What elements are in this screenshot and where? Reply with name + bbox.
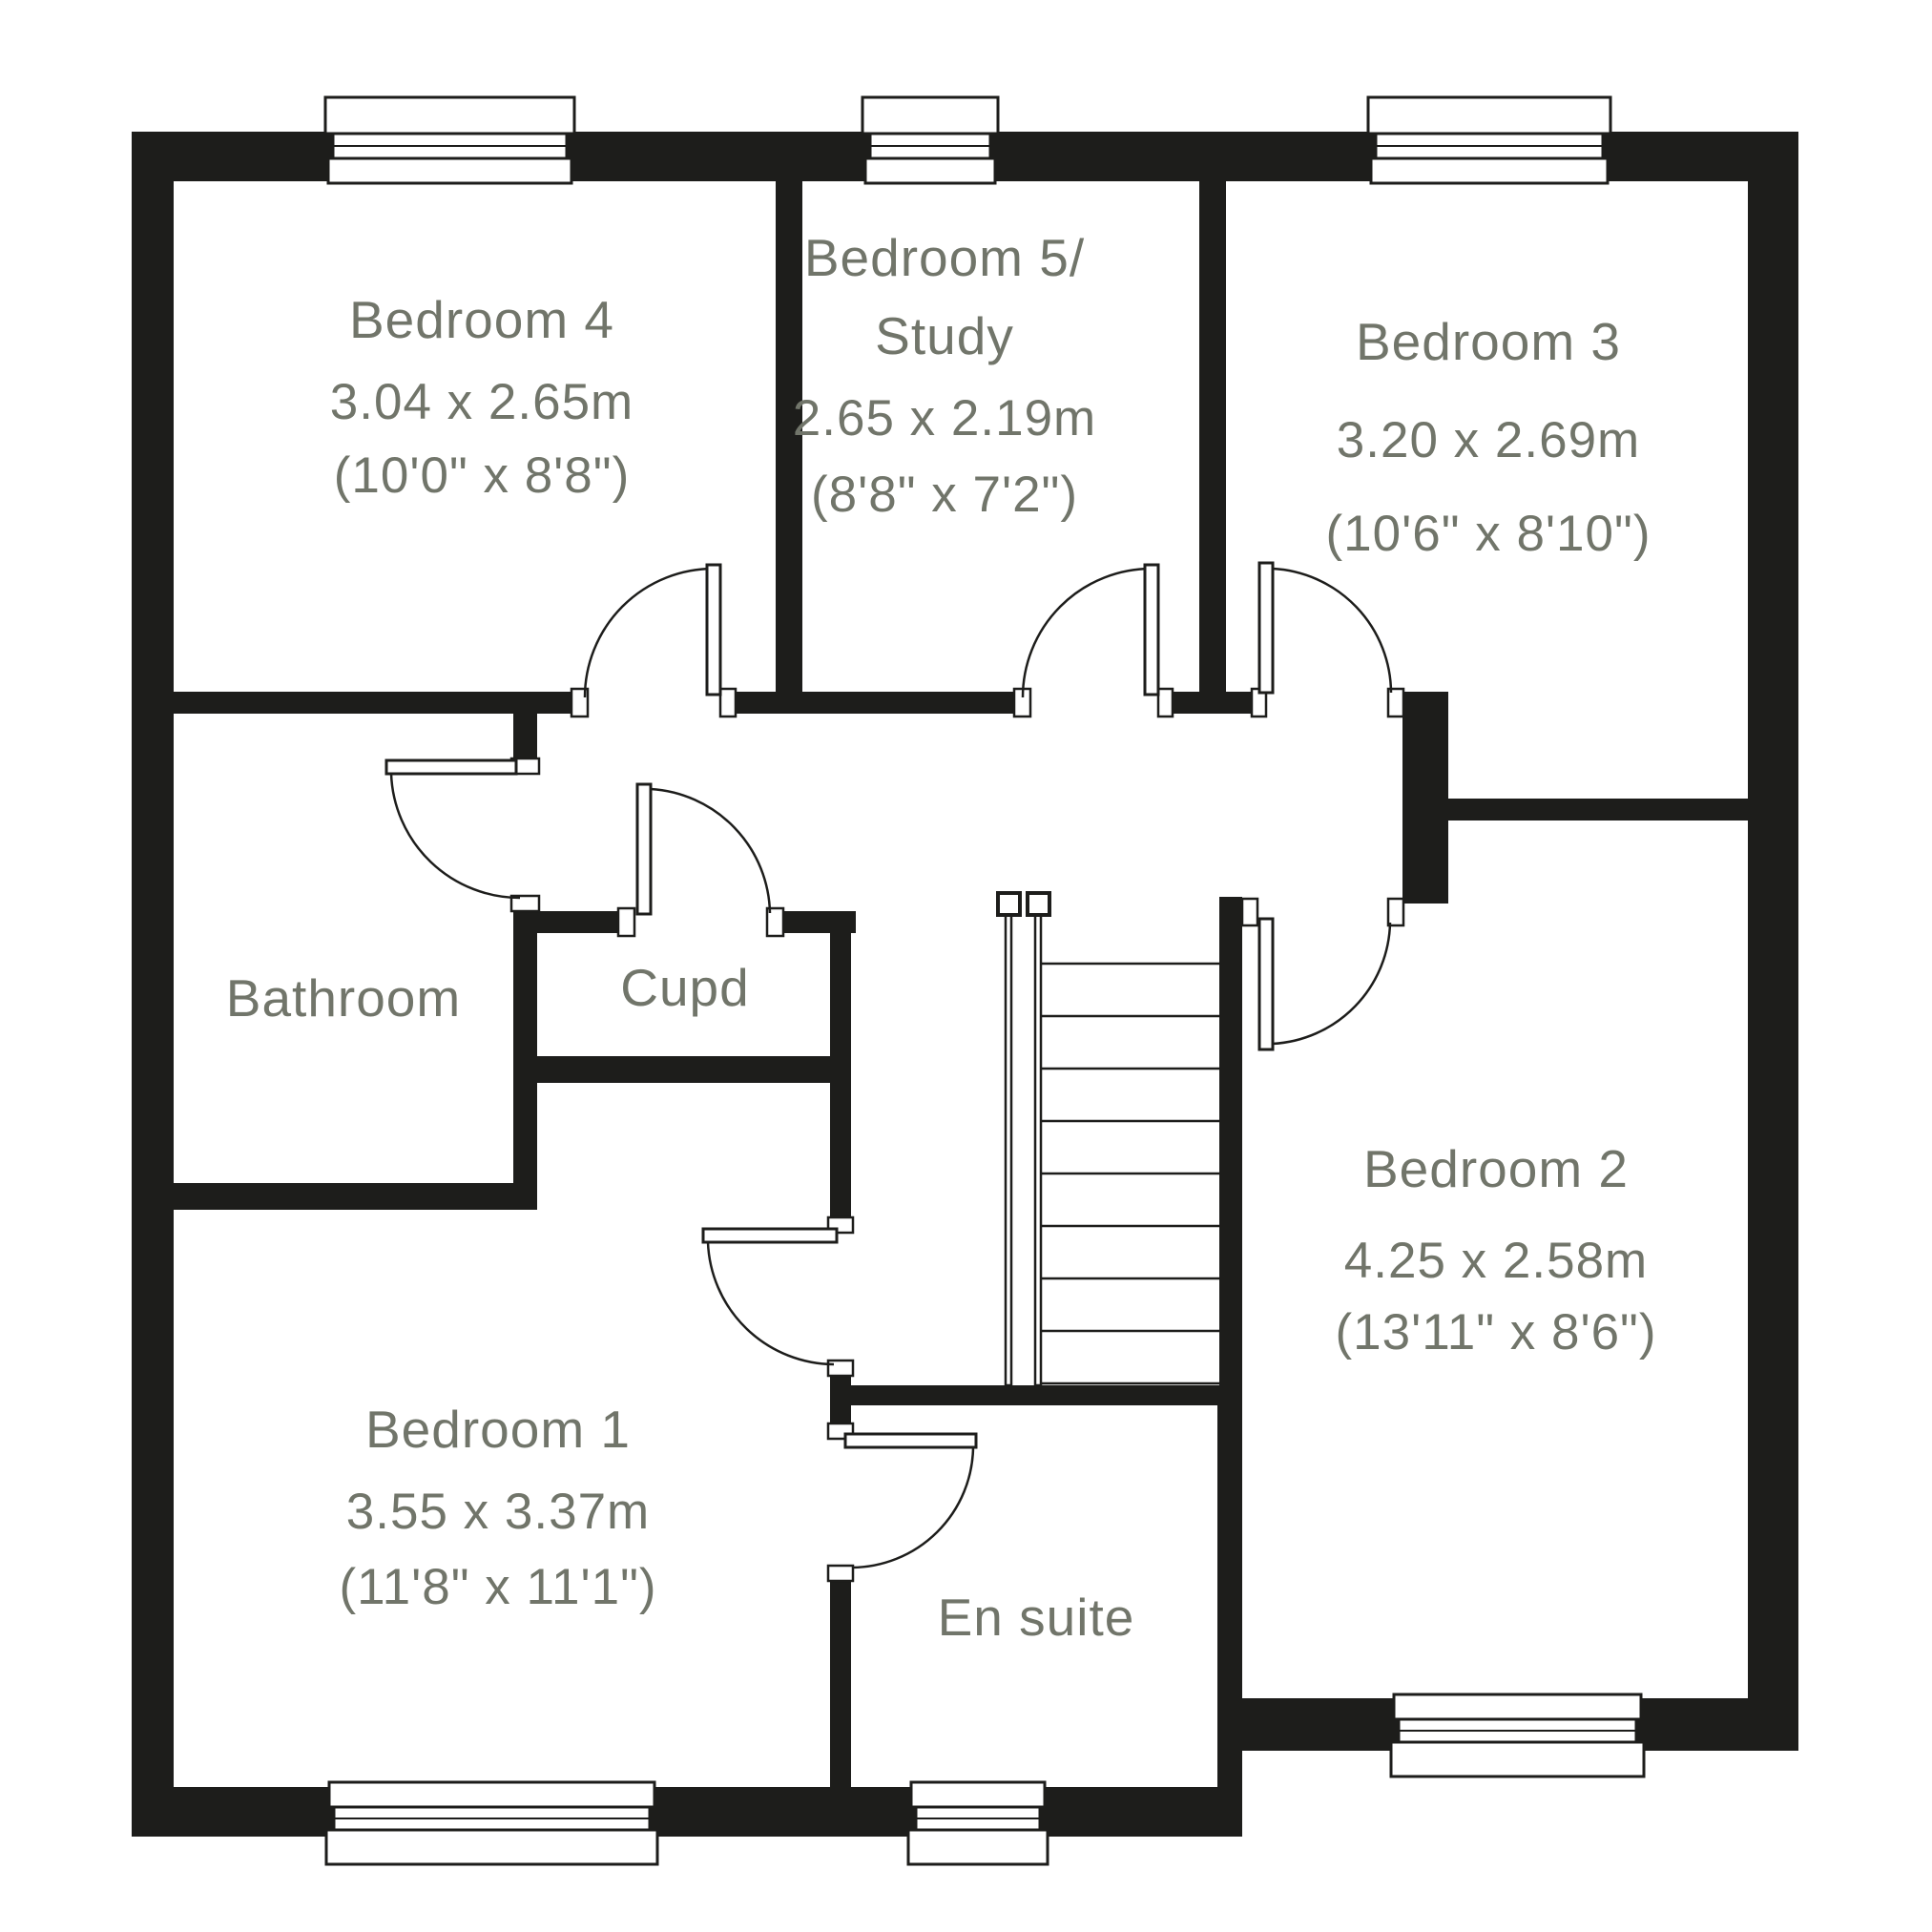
door-jamb-icon xyxy=(1242,899,1257,925)
wall-bottom-left xyxy=(132,1787,1242,1837)
wall-stairs-right xyxy=(1219,897,1242,1385)
door-jamb-icon xyxy=(1158,689,1173,717)
wall-jog-bedroom2 xyxy=(1402,692,1448,904)
door-arc-icon xyxy=(708,1242,834,1364)
door-arc-icon xyxy=(585,569,714,697)
wall-hall-top-1 xyxy=(174,692,573,714)
door-bedroom-4 xyxy=(571,565,736,717)
stair-banister-right xyxy=(1035,914,1041,1385)
room-label-bathroom: Bathroom xyxy=(226,968,461,1028)
window-bedroom-5 xyxy=(862,97,998,183)
door-leaf-icon xyxy=(1259,919,1273,1049)
floorplan-svg: Bedroom 4 3.04 x 2.65m (10'0" x 8'8") Be… xyxy=(0,0,1932,1932)
room-dim-metric-bedroom-3: 3.20 x 2.69m xyxy=(1337,412,1640,468)
door-bedroom-3 xyxy=(1252,563,1403,717)
door-arc-icon xyxy=(1273,923,1390,1044)
wall-ensuite-left-lower xyxy=(830,1580,851,1787)
wall-bed5-bed3-divider xyxy=(1199,181,1226,692)
window-bedroom-2 xyxy=(1391,1694,1644,1776)
window-bedroom-4 xyxy=(325,97,574,183)
door-leaf-icon xyxy=(703,1229,837,1242)
wall-cupd-bottom xyxy=(537,1056,830,1083)
door-leaf-icon xyxy=(845,1434,976,1447)
room-dim-imperial-bedroom-5: (8'8" x 7'2") xyxy=(811,467,1078,523)
door-leaf-icon xyxy=(1259,563,1273,693)
room-dim-imperial-bedroom-2: (13'11" x 8'6") xyxy=(1335,1304,1656,1361)
door-jamb-icon xyxy=(720,689,736,717)
door-leaf-icon xyxy=(637,784,651,914)
door-jamb-icon xyxy=(1388,689,1403,717)
window-bedroom-3 xyxy=(1368,97,1610,183)
door-bedroom-1 xyxy=(703,1217,853,1376)
room-dim-metric-bedroom-1: 3.55 x 3.37m xyxy=(346,1484,650,1540)
room-dim-imperial-bedroom-3: (10'6" x 8'10") xyxy=(1326,506,1652,562)
door-arc-icon xyxy=(852,1447,973,1568)
stair-newel-post-right xyxy=(1028,893,1049,915)
room-label-bedroom-1: Bedroom 1 xyxy=(365,1400,631,1459)
room-dim-metric-bedroom-4: 3.04 x 2.65m xyxy=(330,374,634,430)
wall-bathroom-bottom xyxy=(174,1183,537,1210)
door-arc-icon xyxy=(1023,569,1152,697)
wall-bedroom2-top xyxy=(1448,799,1748,821)
wall-step-connector xyxy=(1217,1405,1242,1837)
staircase xyxy=(998,893,1219,1385)
room-label-cupd: Cupd xyxy=(620,958,749,1017)
door-bedroom-5 xyxy=(1014,565,1173,717)
room-dim-metric-bedroom-2: 4.25 x 2.58m xyxy=(1344,1233,1648,1289)
room-label-ensuite: En suite xyxy=(938,1588,1135,1647)
door-jamb-icon xyxy=(828,1566,853,1581)
wall-cupd-right xyxy=(830,911,851,1217)
door-leaf-icon xyxy=(1145,565,1158,695)
door-arc-icon xyxy=(651,789,770,913)
room-dim-metric-bedroom-5: 2.65 x 2.19m xyxy=(793,390,1096,447)
door-bedroom-2 xyxy=(1242,899,1403,1049)
door-cupd xyxy=(618,784,783,936)
room-dim-imperial-bedroom-4: (10'0" x 8'8") xyxy=(334,447,631,504)
door-jamb-icon xyxy=(1388,899,1403,925)
wall-hall-top-2 xyxy=(736,692,1016,714)
wall-bed1-door-stub xyxy=(830,1375,851,1405)
wall-right xyxy=(1748,132,1798,1751)
door-arc-icon xyxy=(1273,569,1391,693)
wall-bathroom-right-lower xyxy=(513,900,537,1210)
room-label-bedroom-3: Bedroom 3 xyxy=(1356,312,1621,371)
door-ensuite xyxy=(828,1423,976,1581)
room-label-bedroom-4: Bedroom 4 xyxy=(349,290,614,349)
door-arc-icon xyxy=(391,774,520,898)
door-jamb-icon xyxy=(828,1361,853,1376)
window-bedroom-1 xyxy=(326,1782,657,1864)
wall-left xyxy=(132,132,174,1837)
door-bathroom xyxy=(386,758,539,911)
wall-hall-bottom xyxy=(832,1385,1242,1405)
wall-hall-top-3 xyxy=(1173,692,1252,714)
door-leaf-icon xyxy=(707,565,720,695)
door-leaf-icon xyxy=(386,760,516,774)
stair-banister-left xyxy=(1006,914,1011,1385)
door-jamb-icon xyxy=(618,908,634,936)
window-ensuite xyxy=(908,1782,1048,1864)
room-label-bedroom-5-line2: Study xyxy=(875,306,1014,365)
wall-cupd-top-left xyxy=(537,911,620,933)
stair-newel-post-left xyxy=(998,893,1020,915)
room-label-bedroom-2: Bedroom 2 xyxy=(1363,1139,1629,1198)
room-dim-imperial-bedroom-1: (11'8" x 11'1") xyxy=(339,1559,656,1615)
room-label-bedroom-5-line1: Bedroom 5/ xyxy=(804,228,1085,287)
